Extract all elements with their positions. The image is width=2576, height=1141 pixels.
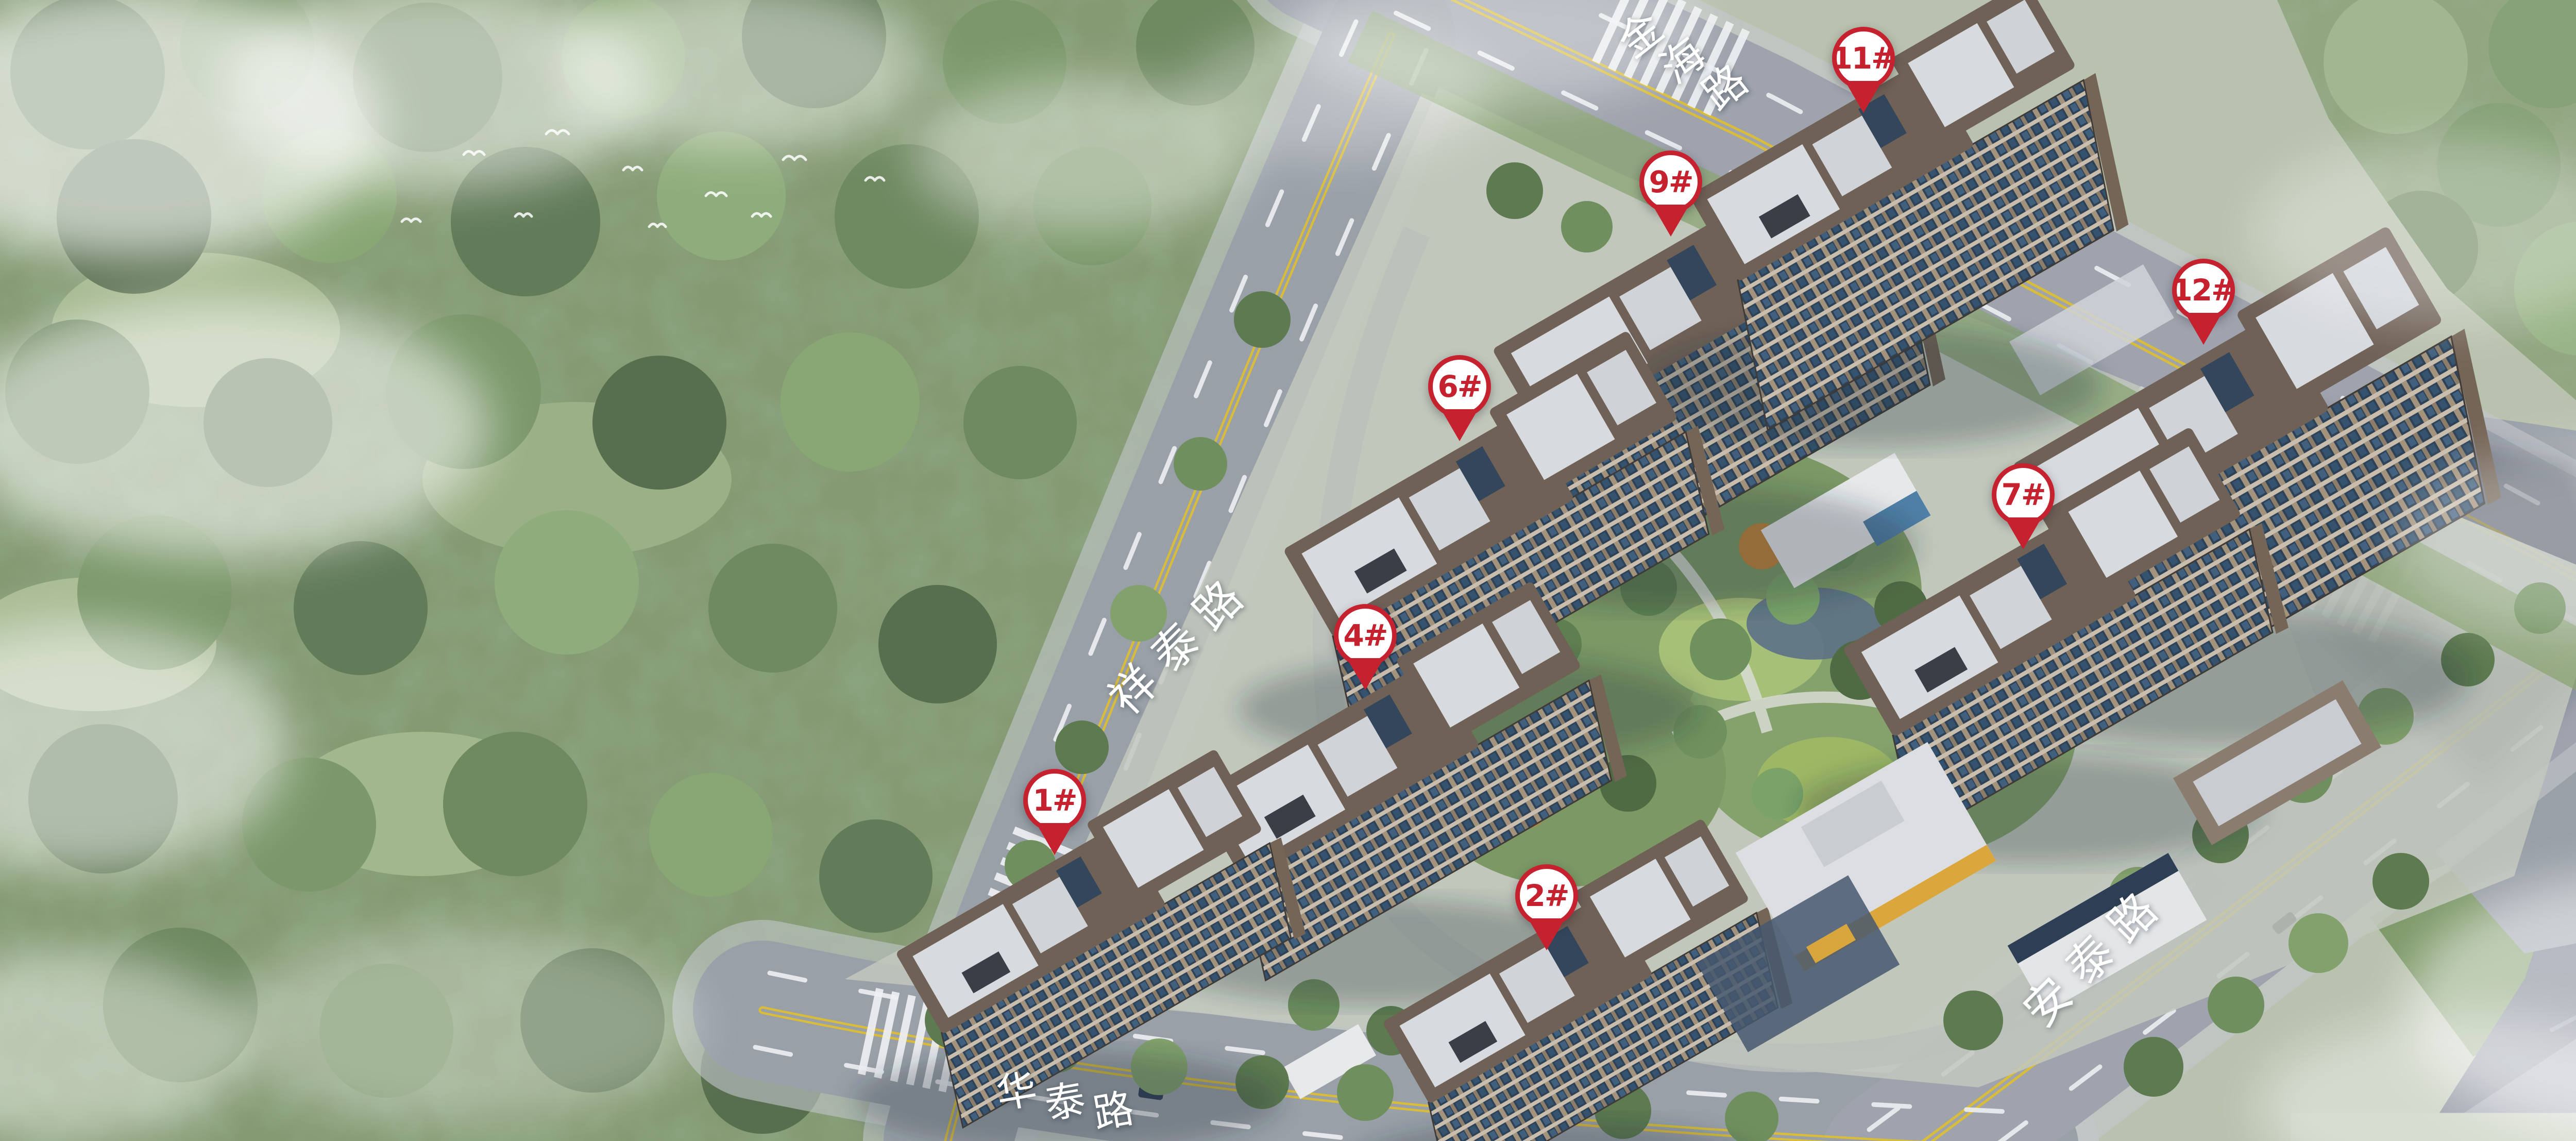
- building-marker-12[interactable]: 12#: [2172, 259, 2235, 322]
- building-marker-label: 1#: [1033, 785, 1077, 815]
- building-marker-2[interactable]: 2#: [1515, 864, 1578, 927]
- building-marker-1[interactable]: 1#: [1023, 769, 1086, 832]
- building-marker-label: 12#: [2172, 275, 2235, 305]
- kindergarten-tag: 幼儿园: [1719, 858, 1835, 893]
- site-plan-scene: [0, 0, 2576, 1141]
- building-marker-9[interactable]: 9#: [1639, 150, 1702, 213]
- building-marker-6[interactable]: 6#: [1428, 355, 1491, 418]
- aerial-rendering: 祥泰路 安泰路 金 海 路 华 泰 路 幼儿园 1# 2# 4# 6# 7# 9…: [0, 0, 2576, 1141]
- building-marker-label: 2#: [1525, 881, 1569, 911]
- building-marker-label: 9#: [1649, 167, 1693, 197]
- building-marker-11[interactable]: 11#: [1832, 27, 1895, 90]
- building-marker-7[interactable]: 7#: [1992, 463, 2055, 526]
- building-marker-4[interactable]: 4#: [1334, 604, 1397, 667]
- building-marker-label: 6#: [1438, 372, 1482, 401]
- building-marker-label: 7#: [2002, 480, 2045, 510]
- building-marker-label: 11#: [1832, 43, 1895, 73]
- building-marker-label: 4#: [1344, 620, 1387, 650]
